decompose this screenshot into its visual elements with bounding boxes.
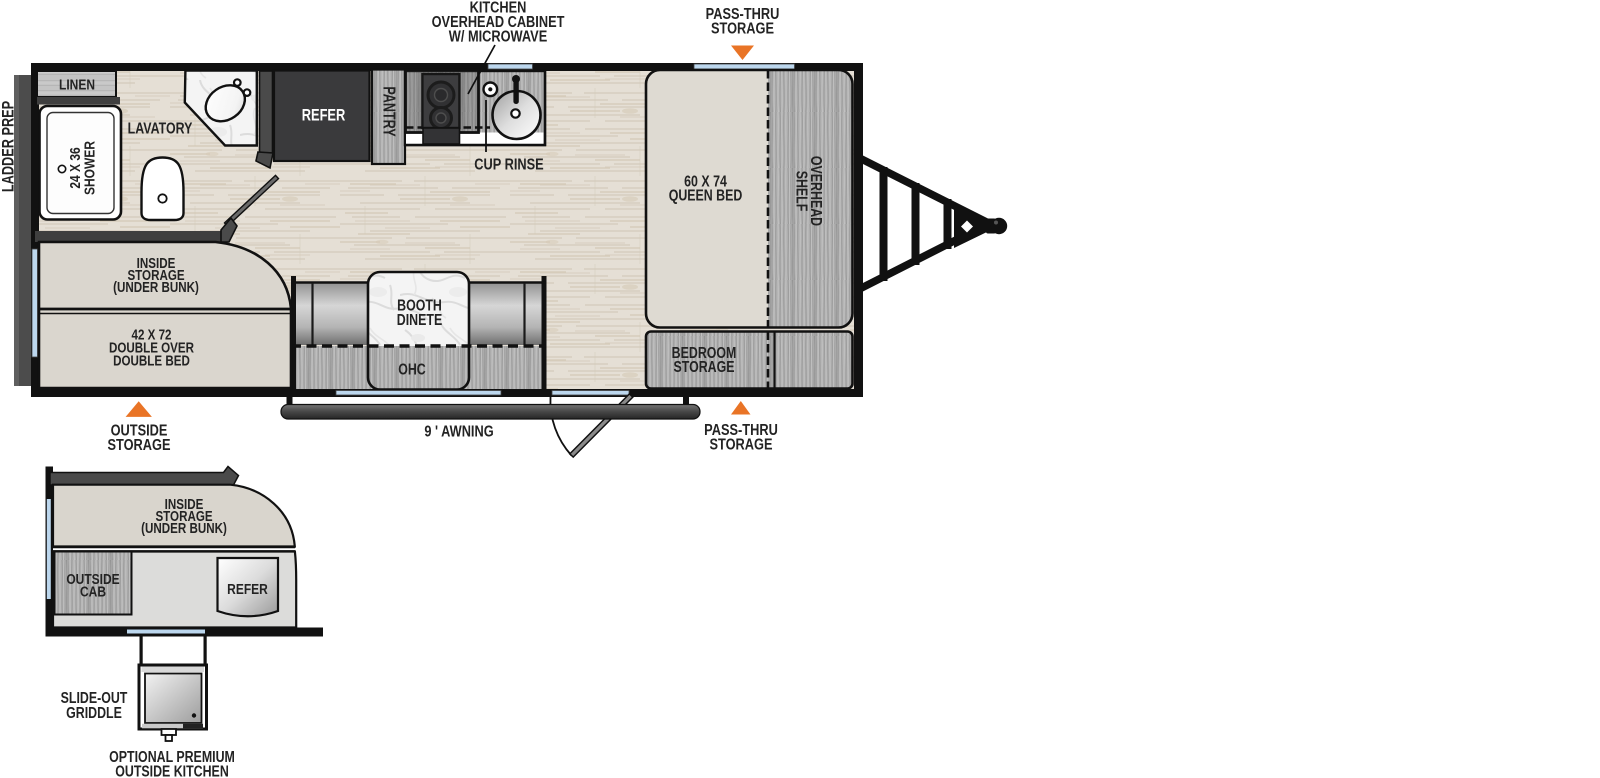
svg-text:CUP RINSE: CUP RINSE	[474, 156, 544, 174]
svg-text:REFER: REFER	[302, 107, 346, 125]
svg-text:DINETE: DINETE	[397, 311, 442, 329]
svg-text:GRIDDLE: GRIDDLE	[66, 704, 122, 722]
svg-text:STORAGE: STORAGE	[710, 436, 773, 454]
svg-text:STORAGE: STORAGE	[673, 358, 734, 376]
svg-text:SHOWER: SHOWER	[81, 141, 98, 195]
svg-text:DOUBLE BED: DOUBLE BED	[113, 352, 190, 369]
svg-text:(UNDER BUNK): (UNDER BUNK)	[113, 279, 199, 296]
svg-text:CAB: CAB	[80, 583, 106, 600]
svg-text:STORAGE: STORAGE	[711, 20, 774, 38]
svg-text:STORAGE: STORAGE	[108, 437, 171, 455]
svg-text:REFER: REFER	[227, 581, 268, 598]
svg-text:OUTSIDE KITCHEN: OUTSIDE KITCHEN	[115, 762, 229, 778]
svg-text:PANTRY: PANTRY	[379, 86, 399, 137]
svg-text:QUEEN BED: QUEEN BED	[669, 186, 743, 204]
svg-text:LAVATORY: LAVATORY	[128, 119, 193, 137]
svg-text:(UNDER BUNK): (UNDER BUNK)	[141, 520, 227, 537]
svg-text:LADDER PREP: LADDER PREP	[0, 101, 18, 192]
svg-text:SHELF: SHELF	[793, 171, 811, 212]
svg-text:LINEN: LINEN	[59, 76, 95, 93]
svg-text:OHC: OHC	[398, 360, 426, 378]
svg-text:9 ' AWNING: 9 ' AWNING	[424, 423, 493, 441]
svg-text:W/ MICROWAVE: W/ MICROWAVE	[449, 28, 548, 46]
